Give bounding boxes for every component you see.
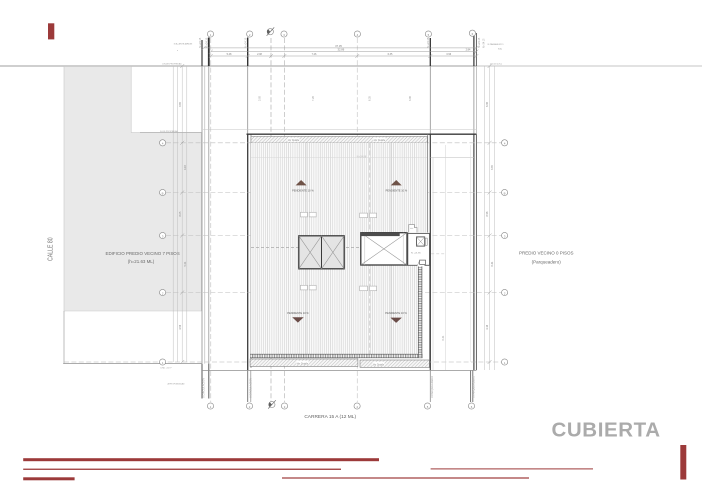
svg-text:PENDIENTE 10 %: PENDIENTE 10 %	[292, 188, 314, 192]
svg-text:3.35: 3.35	[491, 165, 494, 170]
svg-text:6.35: 6.35	[368, 96, 371, 101]
svg-text:4.16: 4.16	[184, 165, 187, 170]
svg-text:CALLE 80: CALLE 80	[47, 237, 55, 261]
svg-text:7.26: 7.26	[312, 96, 315, 101]
svg-text:V.PARQUEADERO: V.PARQUEADERO	[471, 376, 475, 398]
svg-text:PENDIENTE 10 %: PENDIENTE 10 %	[385, 311, 407, 315]
svg-text:2.84: 2.84	[466, 49, 471, 52]
svg-text:8.96: 8.96	[486, 211, 489, 216]
svg-text:4.56: 4.56	[179, 324, 182, 329]
svg-text:7.26: 7.26	[312, 53, 317, 56]
svg-text:6.41: 6.41	[491, 261, 494, 266]
svg-text:V.PARQUEADERO: V.PARQUEADERO	[430, 376, 434, 398]
svg-text:6.35: 6.35	[388, 53, 393, 56]
svg-text:V.CIRCULACION: V.CIRCULACION	[248, 378, 252, 398]
svg-text:B: B	[504, 191, 506, 195]
svg-text:6.41: 6.41	[442, 335, 445, 340]
svg-text:32.86: 32.86	[338, 48, 345, 52]
svg-text:3.96: 3.96	[446, 53, 451, 56]
svg-text:5.21: 5.21	[184, 261, 187, 266]
svg-text:3.08: 3.08	[259, 96, 262, 101]
svg-text:CARRERA 15 A (12 ML): CARRERA 15 A (12 ML)	[304, 414, 356, 420]
svg-text:N: +21.85: N: +21.85	[411, 253, 421, 255]
svg-text:37.35: 37.35	[335, 44, 342, 48]
svg-text:V.CIRCULACION: V.CIRCULACION	[202, 378, 206, 398]
svg-text:N:+24.15: N:+24.15	[244, 37, 247, 48]
svg-text:PREDIO VECINO 0 PISOS: PREDIO VECINO 0 PISOS	[519, 250, 574, 255]
svg-text:N:+24.88: N:+24.88	[357, 157, 367, 159]
svg-text:N:+24.15: N:+24.15	[427, 37, 430, 48]
svg-text:4.16: 4.16	[486, 324, 489, 329]
svg-text:100.00 (L/C): 100.00 (L/C)	[490, 64, 502, 66]
svg-text:2.08: 2.08	[257, 53, 262, 56]
svg-text:N:+24.15: N:+24.15	[205, 37, 208, 48]
svg-text:(Parqueadero): (Parqueadero)	[532, 260, 562, 265]
svg-text:N:+24.15: N:+24.15	[483, 38, 485, 48]
svg-text:PENDIENTE 10 %: PENDIENTE 10 %	[386, 188, 408, 192]
svg-text:8.05: 8.05	[179, 211, 182, 216]
svg-text:PENDIENTE 10 %: PENDIENTE 10 %	[287, 311, 309, 315]
svg-text:EDIFICIO PREDIO VECINO 7 PISOS: EDIFICIO PREDIO VECINO 7 PISOS	[105, 251, 179, 256]
svg-text:CUBIERTA: CUBIERTA	[552, 419, 661, 442]
svg-text:N:+24.15: N:+24.15	[478, 37, 481, 48]
svg-text:5.48: 5.48	[227, 53, 232, 56]
svg-text:(h=21.63 ML): (h=21.63 ML)	[128, 259, 155, 264]
svg-text:9.65: 9.65	[179, 101, 182, 106]
svg-text:LIND. 24.77: LIND. 24.77	[160, 367, 172, 369]
svg-text:N:+24.15: N:+24.15	[199, 37, 202, 48]
svg-text:6.96: 6.96	[486, 101, 489, 106]
svg-text:3.96: 3.96	[409, 96, 412, 101]
svg-text:B: B	[162, 191, 164, 195]
